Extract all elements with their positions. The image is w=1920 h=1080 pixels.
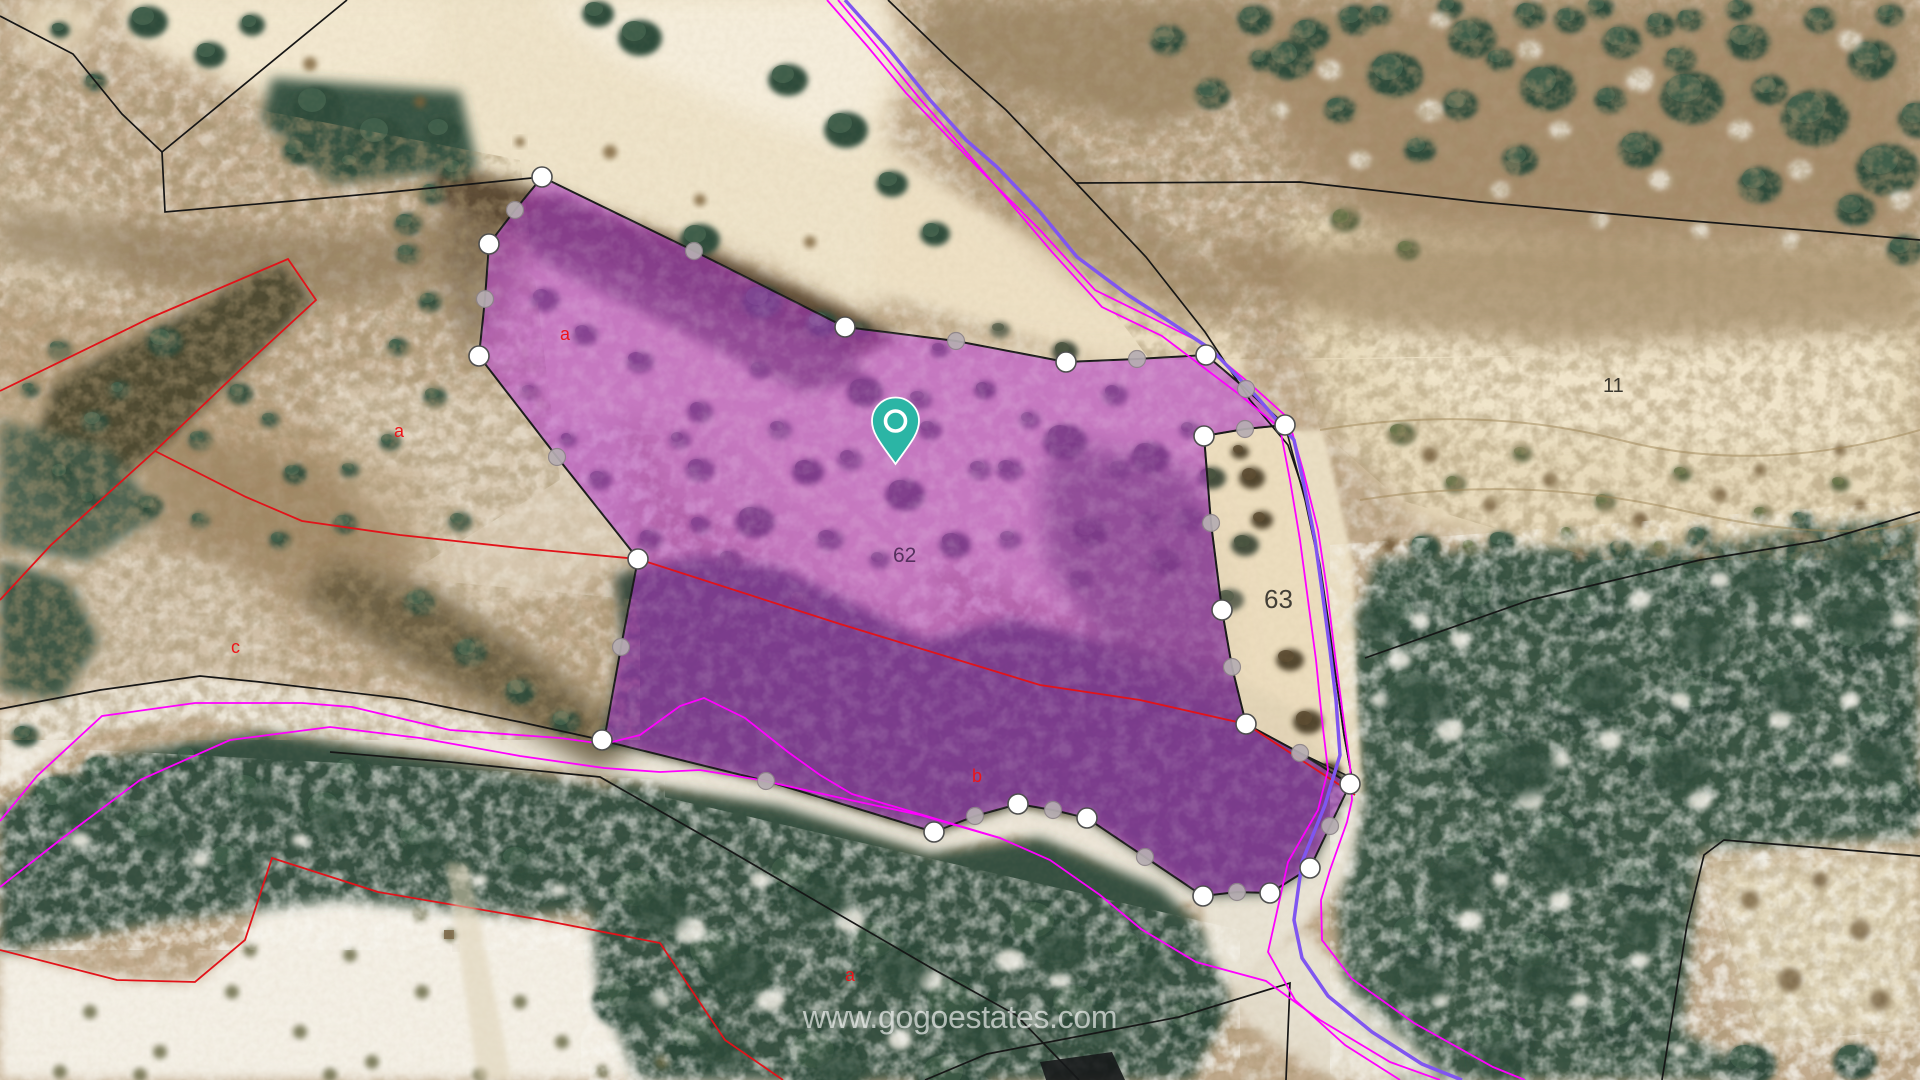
svg-text:63: 63 — [1264, 584, 1293, 614]
svg-text:c: c — [231, 637, 240, 657]
svg-text:62: 62 — [893, 544, 916, 567]
svg-text:a: a — [560, 324, 571, 344]
svg-text:11: 11 — [1603, 375, 1624, 397]
svg-text:a: a — [394, 421, 405, 441]
svg-text:www.gogoestates.com: www.gogoestates.com — [802, 999, 1117, 1035]
svg-text:b: b — [972, 766, 982, 786]
svg-text:a: a — [845, 965, 856, 985]
